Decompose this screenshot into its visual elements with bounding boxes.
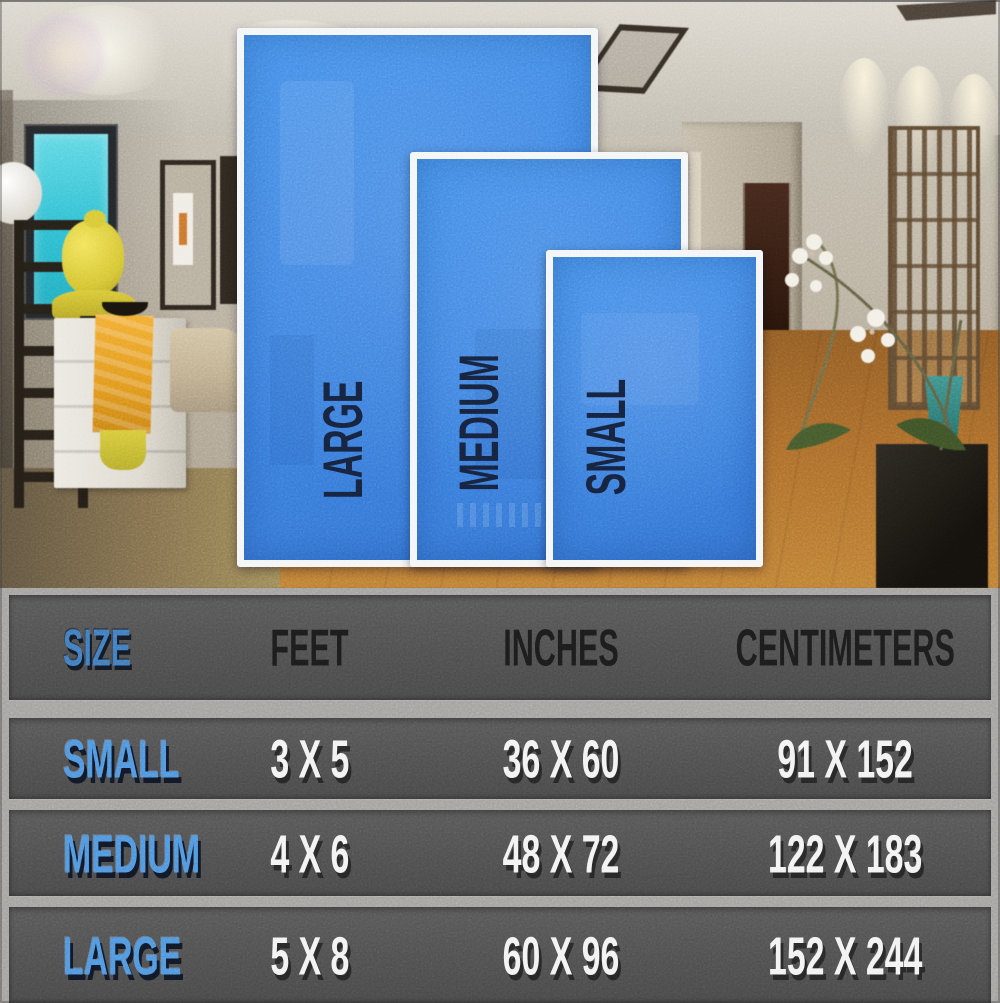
left-wall-edge: [0, 90, 13, 520]
wall-spotlight-glow: [838, 58, 890, 163]
room-photo: LARGE MEDIUM SMALL: [0, 0, 1000, 588]
medium-inches-value: 48 X 72: [423, 826, 699, 881]
buddha-statue-head: [62, 220, 124, 296]
rug-swatch-small: SMALL: [546, 250, 763, 567]
small-feet-value: 3 X 5: [197, 731, 423, 786]
large-inches-value: 60 X 96: [423, 928, 699, 983]
rug-size-chart-poster: LARGE MEDIUM SMALL SIZE FEET INCHES CENT…: [0, 0, 1000, 1003]
rug-large-label-text: LARGE: [310, 381, 375, 499]
large-centimeters-value: 152 X 244: [699, 928, 991, 983]
small-centimeters-value: 91 X 152: [699, 731, 991, 786]
rug-ghost-mark: [280, 81, 354, 265]
rug-large-label: LARGE: [312, 290, 372, 588]
beige-armchair: [170, 328, 246, 412]
dark-sideboard: [876, 444, 988, 588]
table-row-medium: MEDIUM 4 X 6 48 X 72 122 X 183: [9, 810, 991, 896]
medium-feet-value: 4 X 6: [197, 826, 423, 881]
large-feet-value: 5 X 8: [197, 928, 423, 983]
column-header-size: SIZE: [9, 622, 197, 674]
lens-flare: [20, 10, 110, 100]
wall-picture-frame: [160, 160, 216, 310]
table-row-large: LARGE 5 X 8 60 X 96 152 X 244: [9, 907, 991, 1003]
rug-medium-label-text: MEDIUM: [446, 354, 511, 491]
table-row-small: SMALL 3 X 5 36 X 60 91 X 152: [9, 718, 991, 799]
medium-centimeters-value: 122 X 183: [699, 826, 991, 881]
rug-small-label-text: SMALL: [573, 379, 638, 496]
small-inches-value: 36 X 60: [423, 731, 699, 786]
rug-ghost-mark: [270, 335, 314, 465]
rug-medium-label: MEDIUM: [448, 273, 508, 573]
row-label-large: LARGE: [9, 928, 197, 983]
column-header-feet: FEET: [197, 622, 423, 674]
orange-cloth: [92, 314, 153, 433]
wall-picture-frame-partial: [220, 156, 238, 304]
row-label-medium: MEDIUM: [9, 826, 197, 881]
column-header-inches: INCHES: [423, 622, 699, 674]
row-label-small: SMALL: [9, 731, 197, 786]
yellow-cloth-tail: [100, 430, 146, 470]
table-header-row: SIZE FEET INCHES CENTIMETERS: [9, 595, 991, 700]
rug-small-label: SMALL: [575, 287, 635, 587]
orchid-plant: [756, 200, 976, 460]
buddha-statue-topknot: [84, 210, 106, 228]
picture-art: [179, 213, 187, 245]
column-header-centimeters: CENTIMETERS: [699, 622, 991, 674]
